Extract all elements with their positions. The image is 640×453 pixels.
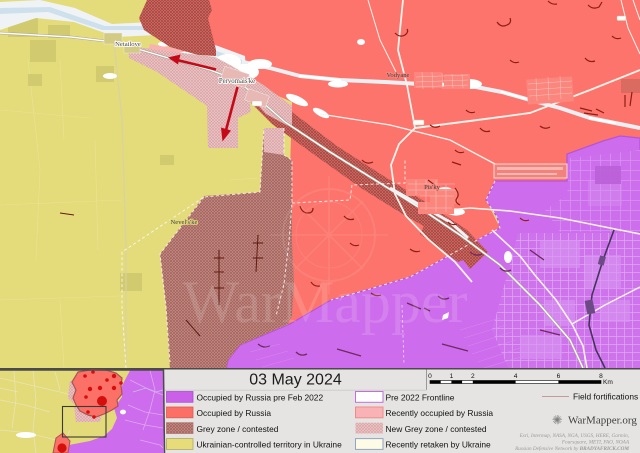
svg-text:6: 6 [557, 373, 561, 380]
svg-text:Occupied by Russia: Occupied by Russia [197, 408, 272, 418]
svg-text:Netailove: Netailove [115, 41, 141, 48]
svg-text:WarMapper: WarMapper [182, 269, 467, 335]
svg-text:2: 2 [471, 373, 475, 380]
svg-text:Nevel's'ke: Nevel's'ke [171, 219, 198, 226]
svg-text:03 May 2024: 03 May 2024 [249, 372, 342, 389]
svg-text:1: 1 [450, 373, 454, 380]
svg-text:Recently occupied by Russia: Recently occupied by Russia [386, 408, 494, 418]
svg-text:Pre 2022 Frontline: Pre 2022 Frontline [386, 393, 455, 403]
svg-text:Vodyane: Vodyane [387, 72, 410, 79]
svg-text:New Grey zone / contested: New Grey zone / contested [386, 424, 487, 434]
svg-text:Occupied by Russia pre Feb 202: Occupied by Russia pre Feb 2022 [197, 393, 324, 403]
svg-text:Pervomais'ke: Pervomais'ke [219, 78, 255, 85]
svg-text:4: 4 [514, 373, 518, 380]
svg-text:0: 0 [428, 373, 432, 380]
svg-text:Grey zone / contested: Grey zone / contested [197, 424, 279, 434]
svg-text:Field fortifications: Field fortifications [573, 392, 638, 402]
svg-text:Russian Defensive Network by B: Russian Defensive Network by BRADYAFRICK… [514, 445, 629, 452]
svg-text:Pis'ky: Pis'ky [424, 184, 441, 191]
svg-text:Ukrainian-controlled territory: Ukrainian-controlled territory in Ukrain… [197, 440, 343, 450]
svg-text:Recently retaken by Ukraine: Recently retaken by Ukraine [386, 440, 492, 450]
svg-text:Esri, Intermap, NASA, NGA, USG: Esri, Intermap, NASA, NGA, USGS, HERE, G… [519, 433, 629, 439]
svg-text:Foursquare, METI, FAO, NOAA: Foursquare, METI, FAO, NOAA [561, 440, 630, 446]
svg-text:Km: Km [603, 379, 613, 386]
svg-text:WarMapper.org: WarMapper.org [568, 415, 637, 427]
